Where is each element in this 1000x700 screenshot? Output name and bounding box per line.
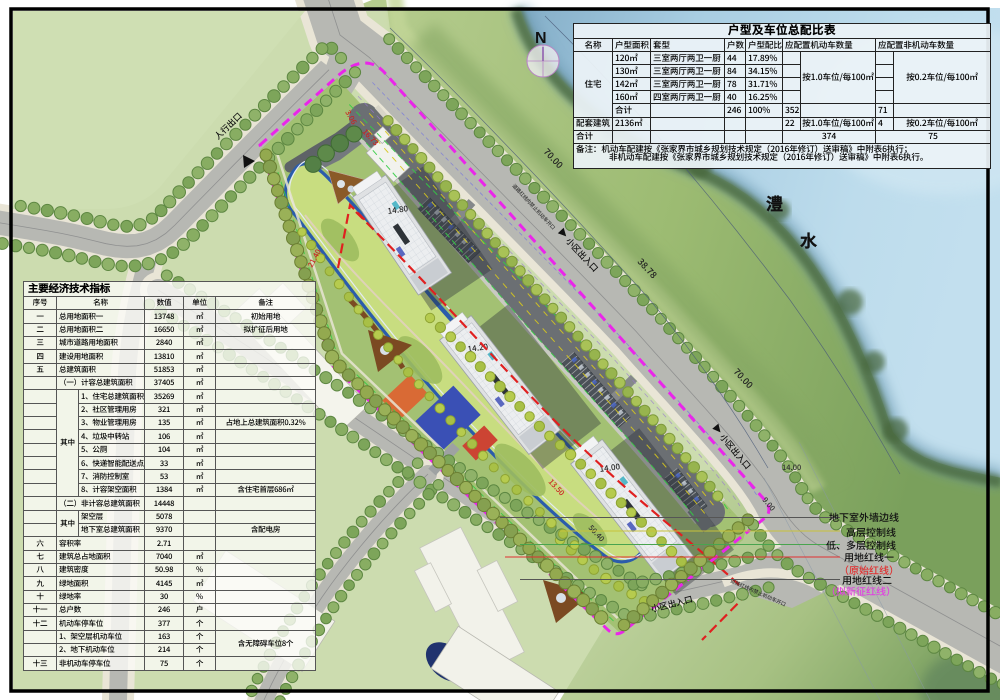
svg-text:N: N — [535, 24, 547, 48]
svg-text:（拟新征红线）: （拟新征红线） — [826, 583, 896, 598]
svg-text:14.00: 14.00 — [782, 462, 801, 473]
svg-text:澧: 澧 — [766, 190, 783, 215]
svg-text:水: 水 — [799, 227, 818, 252]
svg-text:地下室外墙边线: 地下室外墙边线 — [829, 509, 899, 524]
